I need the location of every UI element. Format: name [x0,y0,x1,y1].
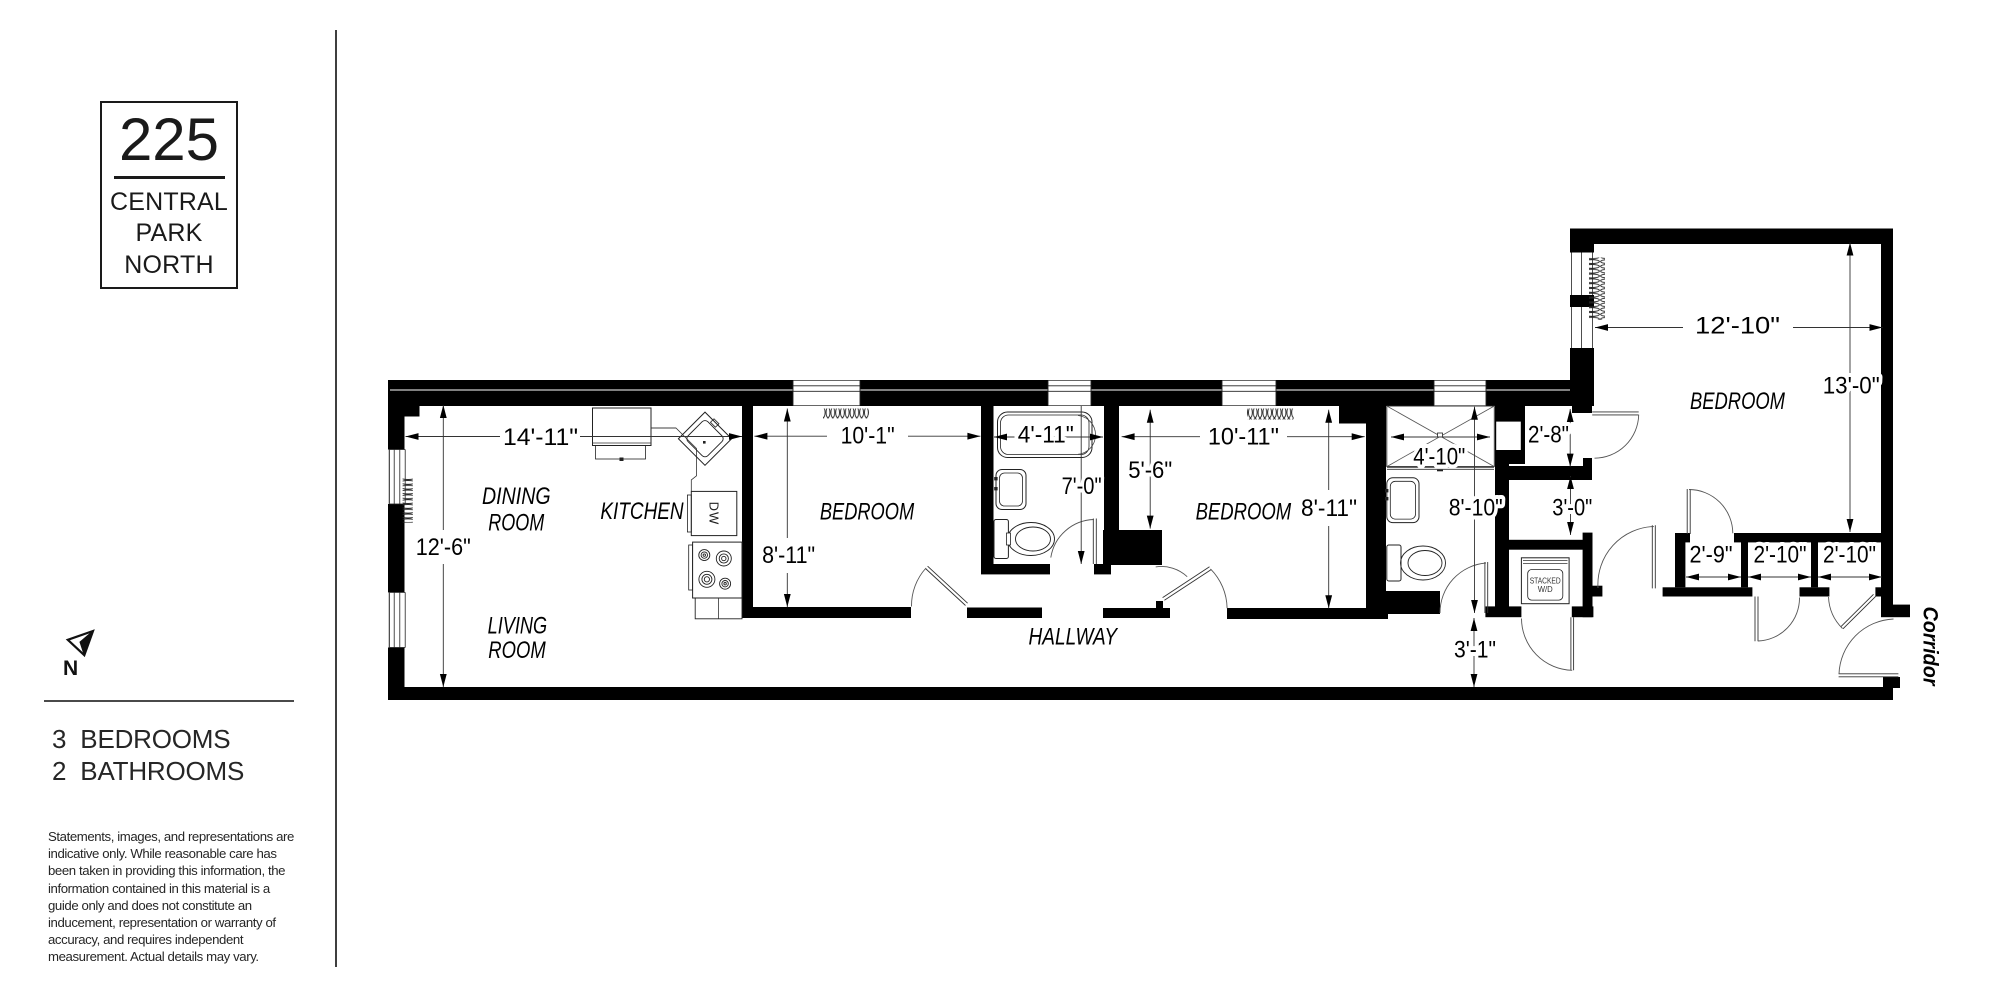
svg-text:8'-10": 8'-10" [1449,494,1503,521]
svg-text:2'-10": 2'-10" [1823,542,1876,569]
svg-text:14'-11": 14'-11" [503,424,578,451]
svg-text:BEDROOM: BEDROOM [1196,499,1292,526]
svg-text:10'-11": 10'-11" [1208,424,1279,451]
svg-text:BEDROOM: BEDROOM [1690,388,1785,415]
svg-text:12'-6": 12'-6" [416,534,471,561]
svg-text:2'-9": 2'-9" [1690,542,1733,569]
svg-text:3'-0": 3'-0" [1552,494,1592,521]
svg-text:13'-0": 13'-0" [1823,373,1880,400]
svg-text:ROOM: ROOM [488,637,546,664]
svg-text:8'-11": 8'-11" [1301,495,1357,522]
svg-text:DW: DW [707,502,722,526]
svg-text:LIVING: LIVING [488,613,548,640]
svg-text:8'-11": 8'-11" [762,542,815,569]
svg-text:2'-8": 2'-8" [1528,422,1569,449]
svg-text:7'-0": 7'-0" [1062,473,1102,500]
svg-text:4'-11": 4'-11" [1018,422,1074,449]
svg-text:Corridor: Corridor [1919,607,1942,688]
svg-text:5'-6": 5'-6" [1128,457,1172,484]
svg-text:W/D: W/D [1538,585,1553,594]
svg-text:BEDROOM: BEDROOM [820,499,915,526]
svg-text:ROOM: ROOM [488,510,544,537]
svg-text:KITCHEN: KITCHEN [600,498,684,525]
svg-text:3'-1": 3'-1" [1454,637,1496,664]
svg-text:HALLWAY: HALLWAY [1029,623,1119,650]
svg-text:2'-10": 2'-10" [1754,542,1807,569]
svg-text:12'-10": 12'-10" [1695,313,1780,340]
svg-text:4'-10": 4'-10" [1413,443,1465,470]
svg-text:10'-1": 10'-1" [841,423,895,450]
svg-text:DINING: DINING [482,483,551,510]
